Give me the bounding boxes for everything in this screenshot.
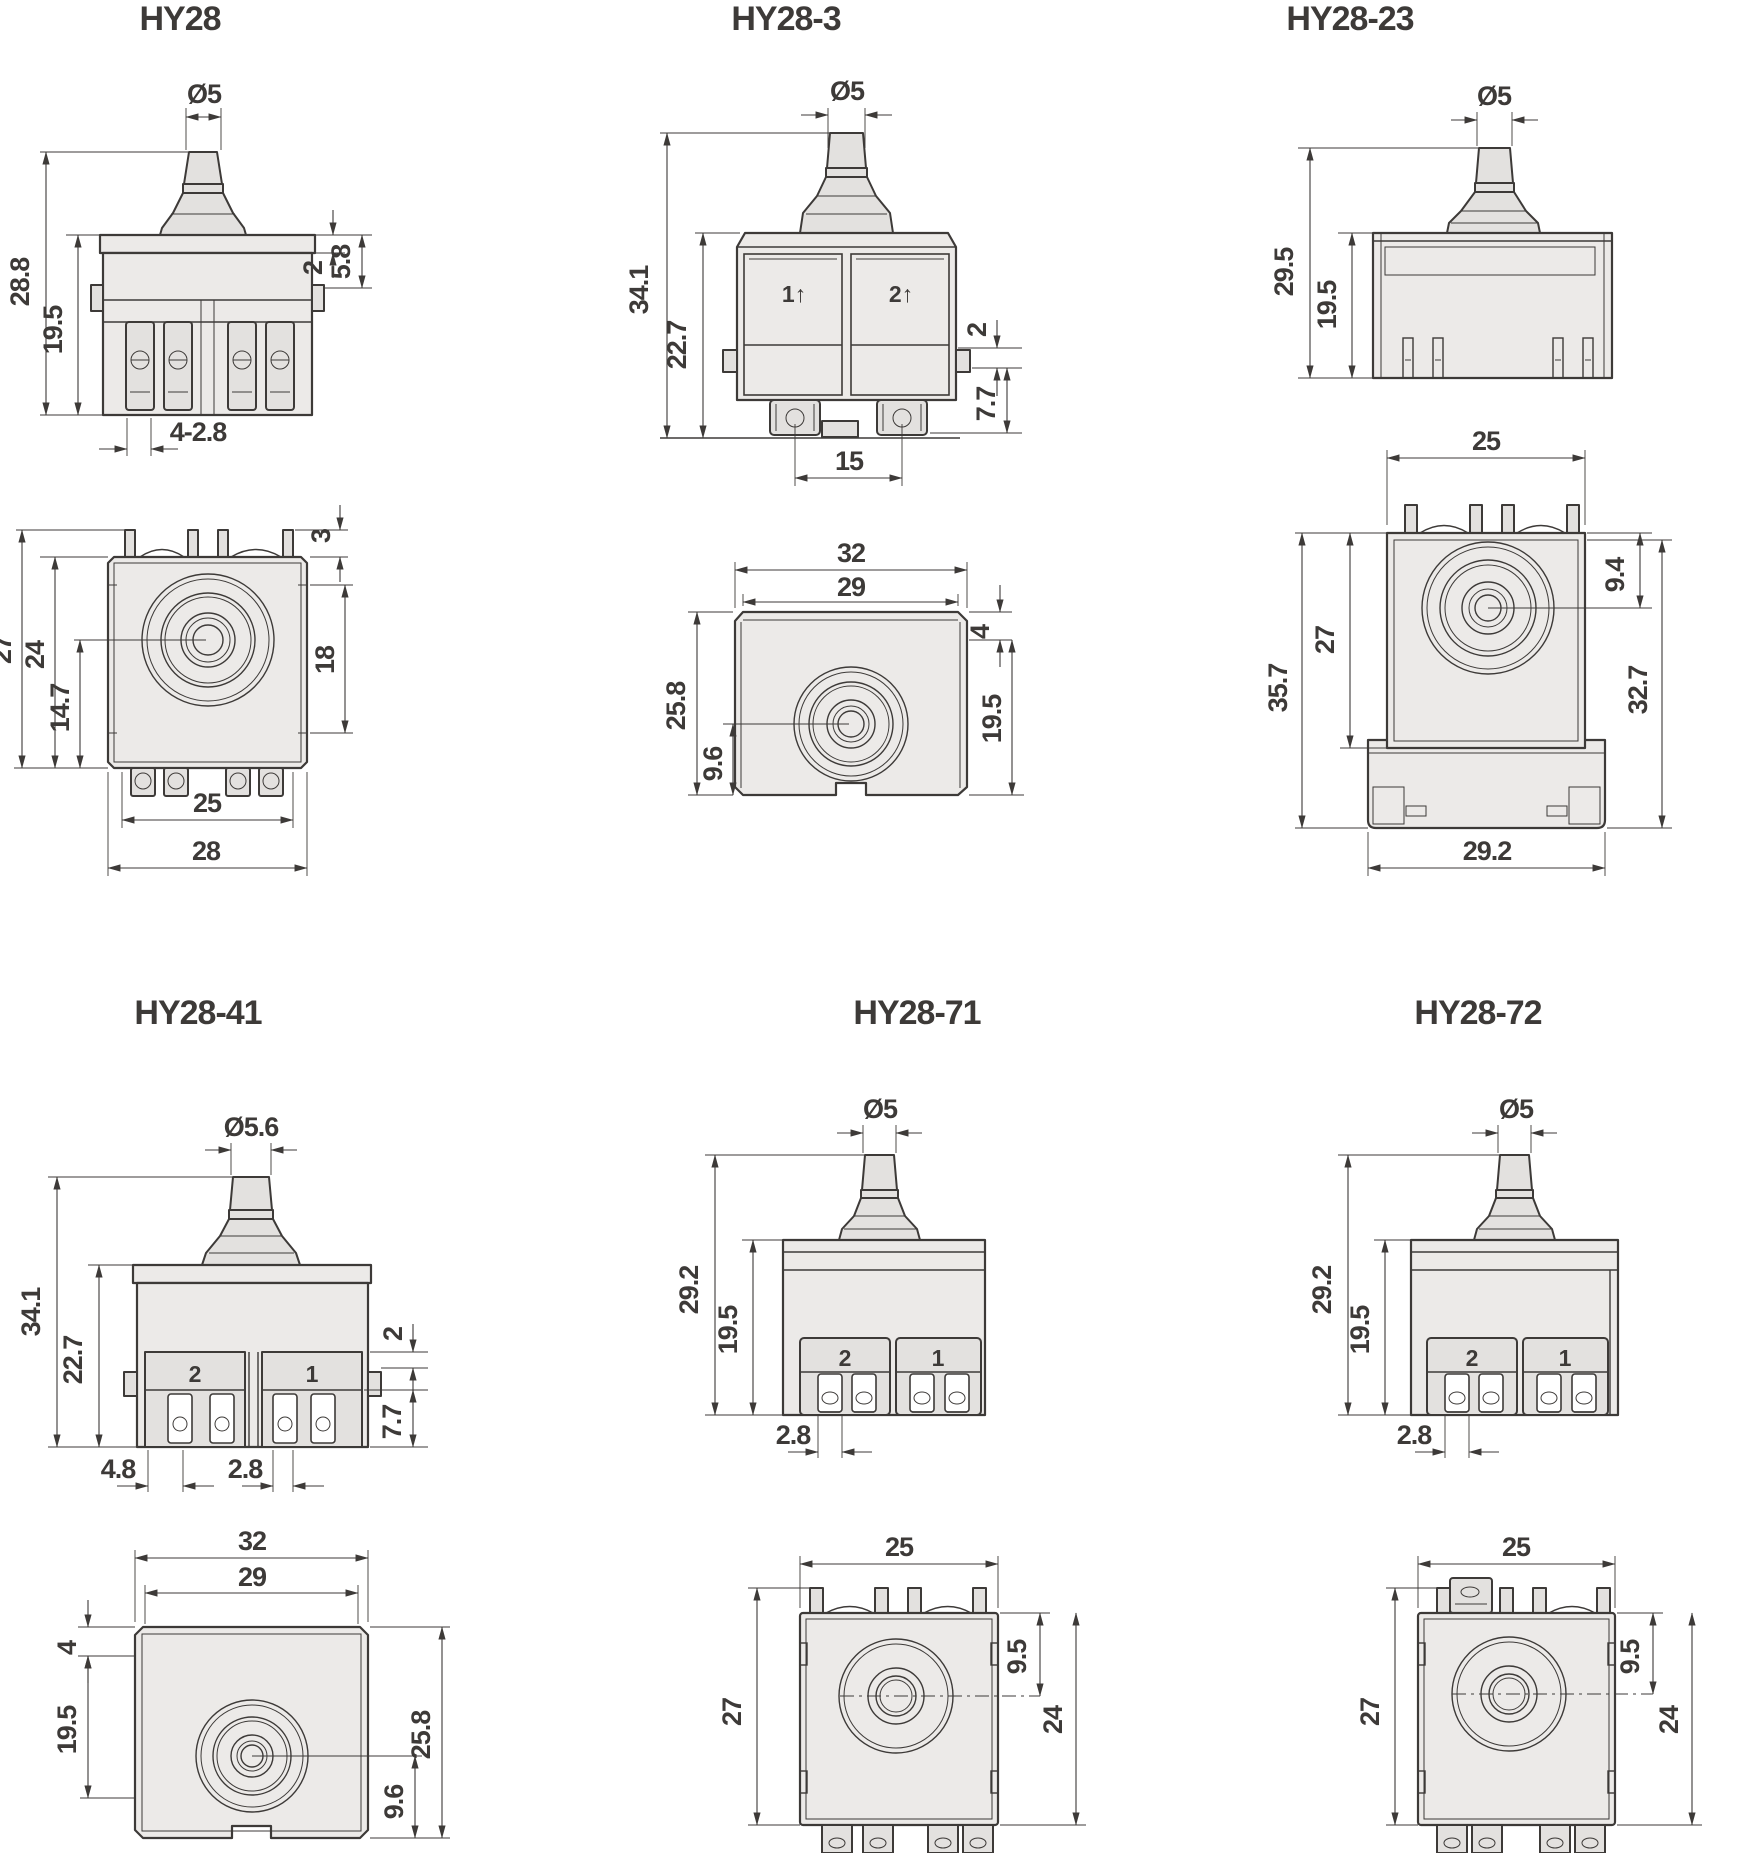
panel-title: HY28 bbox=[139, 0, 220, 38]
module-2-label: 2 bbox=[189, 1361, 202, 1387]
svg-text:32: 32 bbox=[238, 1526, 266, 1556]
svg-text:3: 3 bbox=[306, 528, 336, 543]
svg-text:29.5: 29.5 bbox=[1269, 247, 1299, 297]
dim-19-5: 19.5 bbox=[713, 1240, 783, 1415]
dim-27: 27 bbox=[1310, 533, 1387, 748]
svg-text:2.8: 2.8 bbox=[776, 1420, 812, 1450]
svg-text:24: 24 bbox=[1038, 1705, 1068, 1734]
svg-text:27: 27 bbox=[0, 636, 17, 664]
svg-text:5.8: 5.8 bbox=[326, 244, 356, 280]
svg-text:27: 27 bbox=[1355, 1698, 1385, 1726]
dim-2-8: 2.8 bbox=[1397, 1416, 1499, 1458]
svg-text:19.5: 19.5 bbox=[977, 694, 1007, 744]
dim-4: 4 bbox=[52, 1600, 135, 1683]
svg-text:4: 4 bbox=[52, 1640, 82, 1655]
front-view: 2 1 bbox=[124, 1177, 381, 1447]
svg-text:24: 24 bbox=[20, 640, 50, 669]
dim-dia: Ø5 bbox=[186, 79, 222, 150]
panel-hy28-41: HY28-41 2 1 bbox=[16, 994, 450, 1838]
svg-text:25.8: 25.8 bbox=[406, 1710, 436, 1760]
panel-hy28: HY28 bbox=[0, 0, 372, 876]
svg-text:35.7: 35.7 bbox=[1263, 664, 1293, 713]
bottom-view bbox=[135, 1627, 368, 1838]
dim-22-7: 22.7 bbox=[58, 1265, 133, 1447]
svg-text:2: 2 bbox=[298, 261, 328, 275]
svg-text:19.5: 19.5 bbox=[713, 1305, 743, 1355]
svg-text:Ø5: Ø5 bbox=[187, 79, 222, 109]
svg-text:4: 4 bbox=[965, 624, 995, 639]
svg-text:19.5: 19.5 bbox=[38, 305, 68, 355]
svg-text:22.7: 22.7 bbox=[662, 321, 692, 370]
svg-text:7.7: 7.7 bbox=[971, 387, 1001, 422]
module-2-label: 2↑ bbox=[889, 281, 913, 307]
svg-text:19.5: 19.5 bbox=[1345, 1305, 1375, 1355]
dim-29: 29 bbox=[145, 1562, 358, 1624]
dim-9-5: 9.5 bbox=[1615, 1613, 1663, 1694]
bottom-view bbox=[735, 612, 967, 795]
bottom-view bbox=[108, 530, 307, 796]
dim-4-8: 4.8 bbox=[101, 1450, 214, 1492]
dim-dia: Ø5 bbox=[1472, 1094, 1557, 1153]
svg-text:25: 25 bbox=[1502, 1532, 1531, 1562]
svg-text:25: 25 bbox=[193, 788, 222, 818]
svg-text:34.1: 34.1 bbox=[624, 265, 654, 315]
svg-text:Ø5: Ø5 bbox=[1499, 1094, 1534, 1124]
svg-text:4-2.8: 4-2.8 bbox=[170, 417, 228, 447]
panel-title: HY28-3 bbox=[731, 0, 840, 38]
panel-hy28-3: HY28-3 1↑ 2↑ bbox=[624, 0, 1024, 795]
drawing-sheet: HY28 bbox=[0, 0, 1757, 1853]
dim-2-8: 2.8 bbox=[776, 1416, 872, 1458]
dim-27: 27 bbox=[717, 1588, 810, 1825]
svg-text:2.8: 2.8 bbox=[1397, 1420, 1433, 1450]
front-view: 1↑ 2↑ bbox=[660, 133, 970, 438]
dim-19-5: 19.5 bbox=[1345, 1240, 1411, 1415]
dim-25: 25 bbox=[800, 1532, 998, 1608]
dim-9-5: 9.5 bbox=[1000, 1613, 1050, 1696]
svg-text:29: 29 bbox=[238, 1562, 267, 1592]
dim-5-8: 5.8 bbox=[324, 235, 372, 288]
module-1-label: 1 bbox=[1559, 1345, 1572, 1371]
svg-text:7.7: 7.7 bbox=[377, 1405, 407, 1440]
svg-text:4.8: 4.8 bbox=[101, 1454, 137, 1484]
dimension-drawing-canvas: HY28 bbox=[0, 0, 1757, 1853]
panel-title: HY28-71 bbox=[853, 994, 980, 1032]
front-view bbox=[1373, 148, 1612, 378]
dim-dia: Ø5.6 bbox=[205, 1112, 297, 1175]
svg-text:19.5: 19.5 bbox=[1312, 280, 1342, 330]
module-1-label: 1 bbox=[306, 1361, 319, 1387]
svg-text:25: 25 bbox=[1472, 426, 1501, 456]
dim-18: 18 bbox=[310, 585, 353, 733]
svg-text:9.4: 9.4 bbox=[1600, 557, 1630, 593]
svg-text:24: 24 bbox=[1654, 1705, 1684, 1734]
module-2-label: 2 bbox=[1466, 1345, 1479, 1371]
svg-text:Ø5.6: Ø5.6 bbox=[224, 1112, 280, 1142]
svg-text:19.5: 19.5 bbox=[52, 1705, 82, 1755]
svg-text:32: 32 bbox=[837, 538, 865, 568]
front-view: 2 1 bbox=[783, 1155, 985, 1415]
svg-text:2: 2 bbox=[962, 323, 992, 337]
panel-title: HY28-23 bbox=[1286, 0, 1413, 38]
panel-title: HY28-41 bbox=[134, 994, 261, 1032]
svg-text:Ø5: Ø5 bbox=[830, 76, 865, 106]
svg-text:27: 27 bbox=[1310, 626, 1340, 654]
dim-22-7: 22.7 bbox=[662, 233, 740, 438]
front-view bbox=[91, 152, 324, 415]
svg-text:32.7: 32.7 bbox=[1623, 666, 1653, 715]
dim-7-7: 7.7 bbox=[364, 1390, 428, 1447]
bottom-view bbox=[1368, 505, 1605, 828]
dim-2-8: 2.8 bbox=[228, 1450, 324, 1492]
svg-text:Ø5: Ø5 bbox=[863, 1094, 898, 1124]
panel-hy28-71: HY28-71 2 1 bbox=[674, 994, 1086, 1853]
svg-text:9.6: 9.6 bbox=[698, 746, 728, 782]
dim-19-5: 19.5 bbox=[969, 640, 1024, 795]
svg-text:25.8: 25.8 bbox=[661, 681, 691, 731]
dim-dia: Ø5 bbox=[1451, 81, 1538, 146]
svg-text:15: 15 bbox=[835, 446, 864, 476]
svg-text:28.8: 28.8 bbox=[5, 257, 35, 307]
svg-text:28: 28 bbox=[192, 836, 221, 866]
dim-29: 29 bbox=[743, 572, 958, 606]
svg-text:9.5: 9.5 bbox=[1615, 1639, 1645, 1675]
svg-text:Ø5: Ø5 bbox=[1477, 81, 1512, 111]
svg-text:2.8: 2.8 bbox=[228, 1454, 264, 1484]
dim-24: 24 bbox=[20, 557, 108, 768]
panel-hy28-23: HY28-23 Ø5 bbox=[1263, 0, 1672, 876]
svg-text:22.7: 22.7 bbox=[58, 1336, 88, 1385]
svg-text:14.7: 14.7 bbox=[45, 684, 75, 733]
svg-text:34.1: 34.1 bbox=[16, 1287, 46, 1337]
dim-19-5: 19.5 bbox=[52, 1656, 135, 1798]
svg-text:29: 29 bbox=[837, 572, 866, 602]
module-2-label: 2 bbox=[839, 1345, 852, 1371]
svg-text:29.2: 29.2 bbox=[1463, 836, 1512, 866]
module-1-label: 1 bbox=[932, 1345, 945, 1371]
svg-text:29.2: 29.2 bbox=[1307, 1266, 1337, 1315]
svg-text:18: 18 bbox=[310, 645, 340, 674]
panel-title: HY28-72 bbox=[1414, 994, 1541, 1032]
svg-text:9.5: 9.5 bbox=[1002, 1639, 1032, 1675]
dim-19-5: 19.5 bbox=[1312, 233, 1373, 378]
front-view: 2 1 bbox=[1411, 1155, 1618, 1415]
dim-4-2-8: 4-2.8 bbox=[99, 417, 227, 456]
dim-4: 4 bbox=[965, 585, 1012, 667]
svg-text:25: 25 bbox=[885, 1532, 914, 1562]
svg-text:27: 27 bbox=[717, 1698, 747, 1726]
svg-text:2: 2 bbox=[378, 1327, 408, 1341]
dim-29-2: 29.2 bbox=[1368, 832, 1605, 876]
bottom-view bbox=[800, 1588, 1040, 1853]
dim-dia: Ø5 bbox=[837, 1094, 922, 1153]
svg-text:9.6: 9.6 bbox=[379, 1784, 409, 1820]
svg-text:29.2: 29.2 bbox=[674, 1266, 704, 1315]
bottom-view bbox=[1418, 1578, 1653, 1853]
module-1-label: 1↑ bbox=[782, 281, 806, 307]
dim-19-5: 19.5 bbox=[38, 235, 100, 415]
panel-hy28-72: HY28-72 2 1 bbox=[1307, 994, 1702, 1853]
